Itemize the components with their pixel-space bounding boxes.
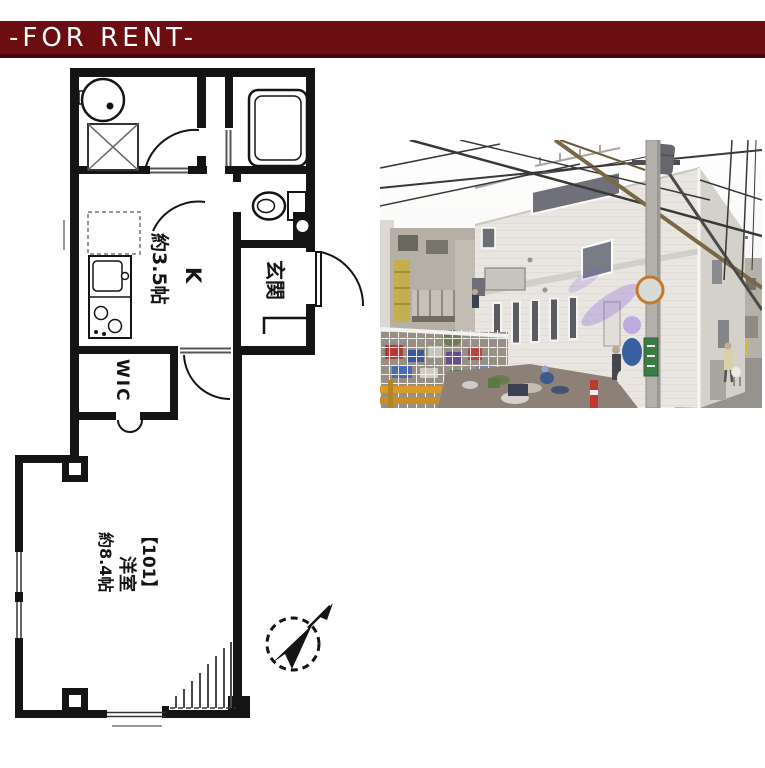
bathtub [249,90,307,166]
washing-machine-pan [88,124,138,170]
kitchen-abbr-label: K [181,267,205,284]
building-photo [380,140,762,408]
person-by-fence [472,289,479,308]
room-size-label: 約8.4帖 [96,532,115,592]
north-compass-icon [267,603,333,670]
entrance-label: 玄関 [263,260,287,300]
kitchen-counter [88,212,140,338]
entrance-door-leaf [316,252,321,306]
stair-hatch [170,642,236,708]
washbasin [79,79,124,121]
closet-label: WIC [112,359,132,403]
water-heater [293,212,312,242]
kitchen-size-label: 約3.5帖 [148,233,171,305]
room-number-label: 【101】 [138,527,159,597]
room-type-label: 洋室 [116,556,138,592]
traffic-mirror [637,277,663,303]
